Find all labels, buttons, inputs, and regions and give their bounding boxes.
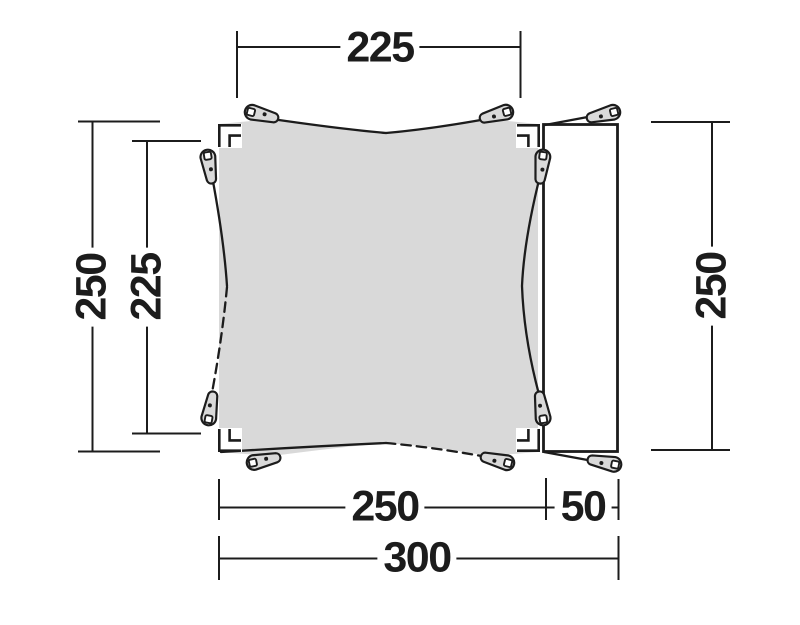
dim-right-height-label: 250 [693,246,732,325]
tent-peg-icon [586,452,622,473]
tent-peg-icon [200,390,221,426]
dim-left-inner-height-label: 225 [128,247,167,326]
tent-dimension-diagram: 225 250 225 250 250 50 300 [0,0,800,625]
tent-canopy [219,119,538,456]
guy-line-tunnel-bottom [544,452,593,461]
dim-bottom-total-width-label: 300 [377,539,456,578]
tent-peg-icon [585,103,622,126]
diagram-linework [0,0,800,625]
dim-top-width-label: 225 [340,29,419,68]
dim-bottom-extension-width-label: 50 [555,488,612,527]
corner-bracket-icon [516,124,540,148]
connection-tunnel [544,125,618,452]
tent-peg-icon [199,149,219,185]
corner-bracket-icon [218,124,242,148]
dim-bottom-main-width-label: 250 [345,488,424,527]
corner-bracket-icon [516,428,540,452]
dim-left-height-label: 250 [73,247,112,326]
corner-bracket-icon [218,428,242,452]
